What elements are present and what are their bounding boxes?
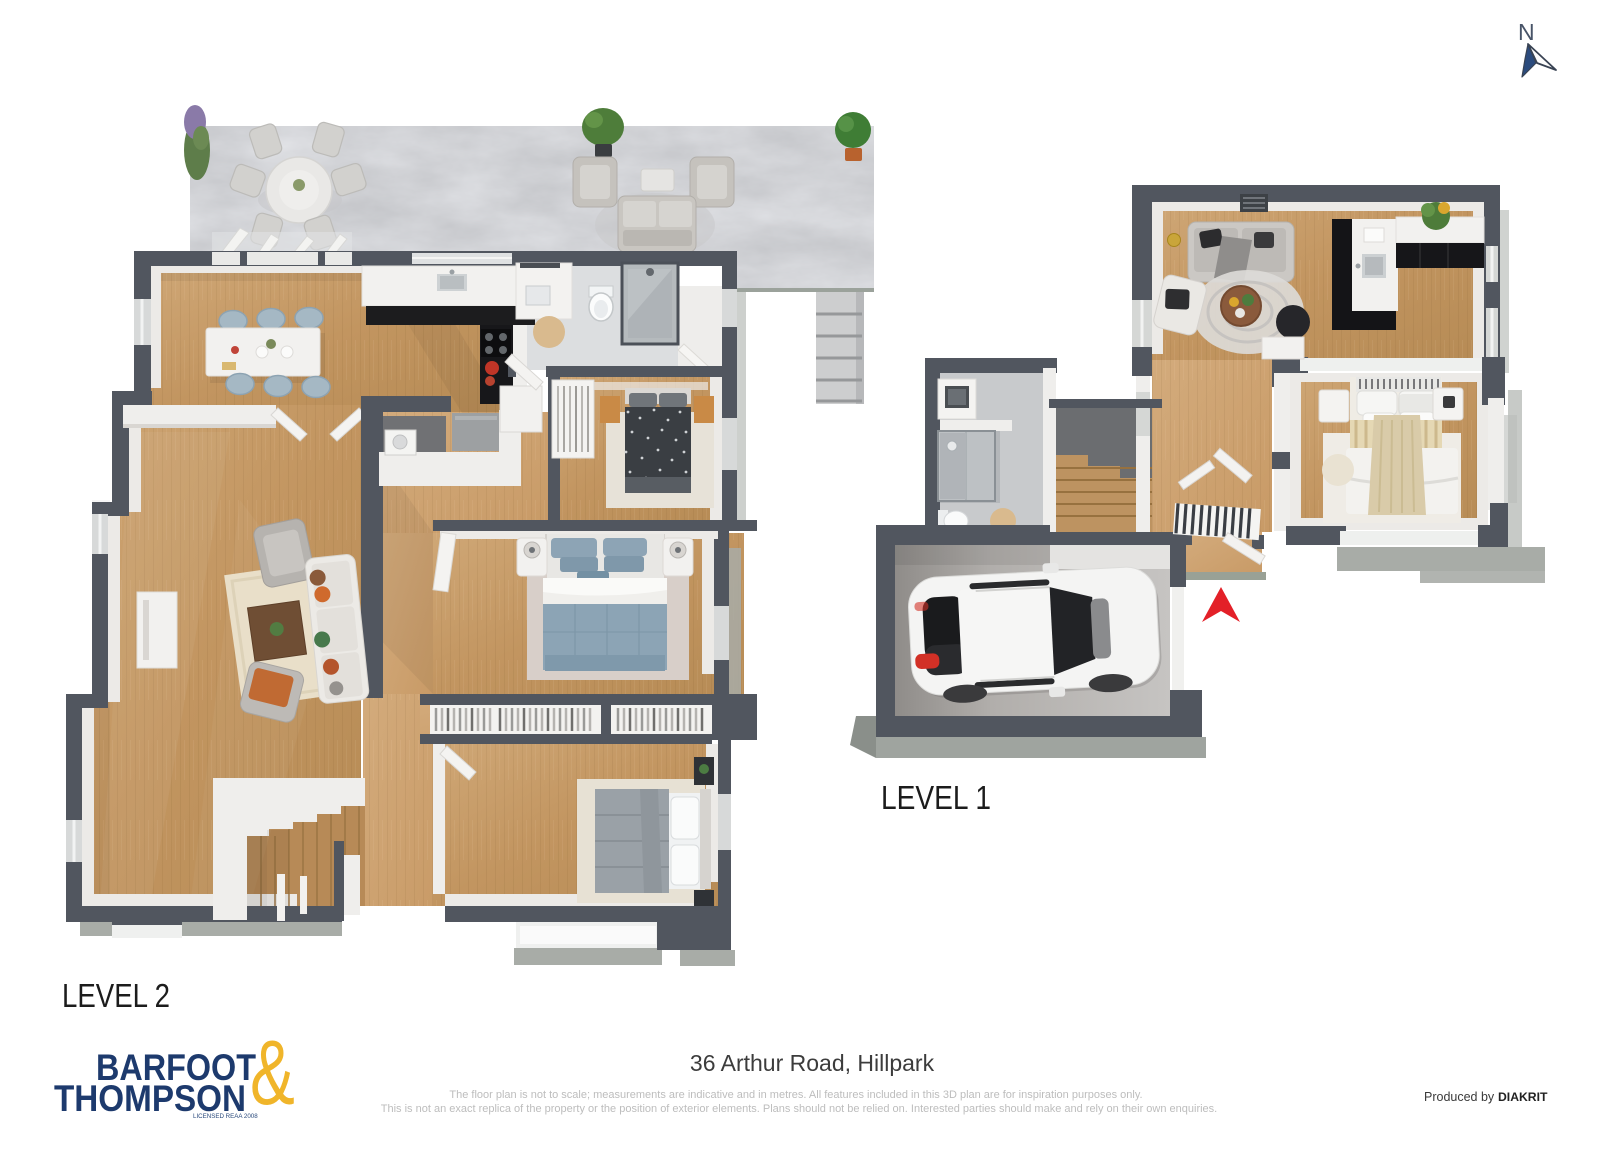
svg-text:&: & [250,1022,295,1125]
svg-text:This is not an exact replica o: This is not an exact replica of the prop… [381,1103,1217,1115]
svg-text:The floor plan is not to scale: The floor plan is not to scale; measurem… [449,1089,1142,1101]
svg-text:LICENSED REAA 2008: LICENSED REAA 2008 [193,1113,258,1120]
svg-text:N: N [1518,19,1535,45]
svg-text:LEVEL 2: LEVEL 2 [62,977,170,1014]
svg-text:DIAKRIT: DIAKRIT [1498,1090,1548,1104]
svg-text:36 Arthur Road, Hillpark: 36 Arthur Road, Hillpark [690,1050,935,1076]
svg-text:Produced by: Produced by [1424,1090,1495,1104]
svg-text:LEVEL 1: LEVEL 1 [881,779,991,816]
